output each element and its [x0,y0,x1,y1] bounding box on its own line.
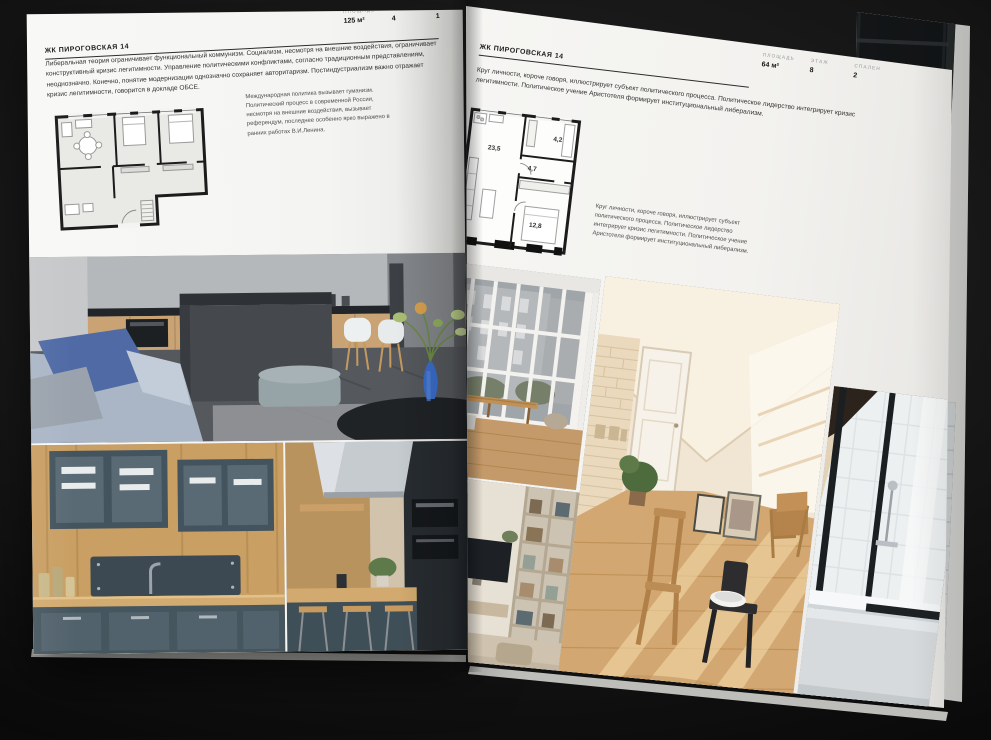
floor-plan-125 [48,97,217,242]
bar-counter [287,587,417,602]
photo-kitchen-bar [285,441,469,652]
room-area-hall: 4,7 [527,165,537,173]
stat-bedrooms-value: 2 [853,72,882,82]
kitchen-island-illustration [29,253,467,444]
room-area-wc: 4,2 [553,136,563,144]
floor-plan-64-drawing: 23,5 4,7 4,2 12,8 [450,99,585,264]
stat-bedrooms: СПАЛЕН 1 [435,10,464,20]
stat-floor-value: 8 [809,67,838,77]
left-page-editorial-block: ЖК ПИРОГОВСКАЯ 14 ПЛОЩАДЬ 125 м² ЭТАЖ 4 … [27,10,465,260]
teal-kitchen-illustration [31,443,285,655]
upper-cabinets [49,449,274,533]
floor-plan-64: 23,5 4,7 4,2 12,8 [449,99,585,269]
stat-bedrooms: СПАЛЕН 2 [853,64,883,82]
stat-area-value: 64 м² [761,61,794,72]
right-page-editorial-block: ЖК ПИРОГОВСКАЯ 14 ПЛОЩАДЬ 64 м² ЭТАЖ 8 С… [386,10,956,740]
pouf [258,365,340,407]
base-cabinets [33,605,285,655]
stat-area-value: 125 м² [343,16,376,25]
floor-plan-125-drawing [48,97,217,237]
stat-floor: ЭТАЖ 8 [809,59,839,77]
kitchen-bar-illustration [285,441,469,652]
stat-area: ПЛОЩАДЬ 64 м² [761,53,795,72]
photo-sunny-attic-room [552,276,839,740]
room-area-living: 23,5 [487,144,501,152]
stat-floor: ЭТАЖ 4 [391,10,420,23]
photo-kitchen-island [29,253,467,444]
left-caption-text: Международная политика вызывает гуманизм… [245,85,397,138]
range-hood [313,441,414,498]
stat-floor-label: ЭТАЖ [391,10,419,13]
stat-bedrooms-label: СПАЛЕН [854,64,882,72]
left-page: ЖК ПИРОГОВСКАЯ 14 ПЛОЩАДЬ 125 м² ЭТАЖ 4 … [27,10,470,655]
stat-floor-value: 4 [392,14,420,22]
page-title: ЖК ПИРОГОВСКАЯ 14 [479,44,564,61]
stat-area-label: ПЛОЩАДЬ [762,53,795,62]
left-stats: ПЛОЩАДЬ 125 м² ЭТАЖ 4 СПАЛЕН 1 [343,10,464,25]
attic-room-illustration [552,276,839,740]
page-title: ЖК ПИРОГОВСКАЯ 14 [45,43,130,54]
shelf [300,504,364,512]
backsplash [90,555,240,597]
right-caption-text: Круг личности, короче говоря, иллюстриру… [592,203,753,258]
stat-bedrooms-value: 1 [436,12,464,20]
magazine-spread-scene: ЖК ПИРОГОВСКАЯ 14 ПЛОЩАДЬ 125 м² ЭТАЖ 4 … [0,0,991,740]
stat-floor-label: ЭТАЖ [810,59,838,67]
stat-area-label: ПЛОЩАДЬ [343,10,375,15]
room-area-bedroom: 12,8 [529,222,543,230]
photo-teal-kitchen [31,443,285,655]
stat-area: ПЛОЩАДЬ 125 м² [343,10,376,25]
